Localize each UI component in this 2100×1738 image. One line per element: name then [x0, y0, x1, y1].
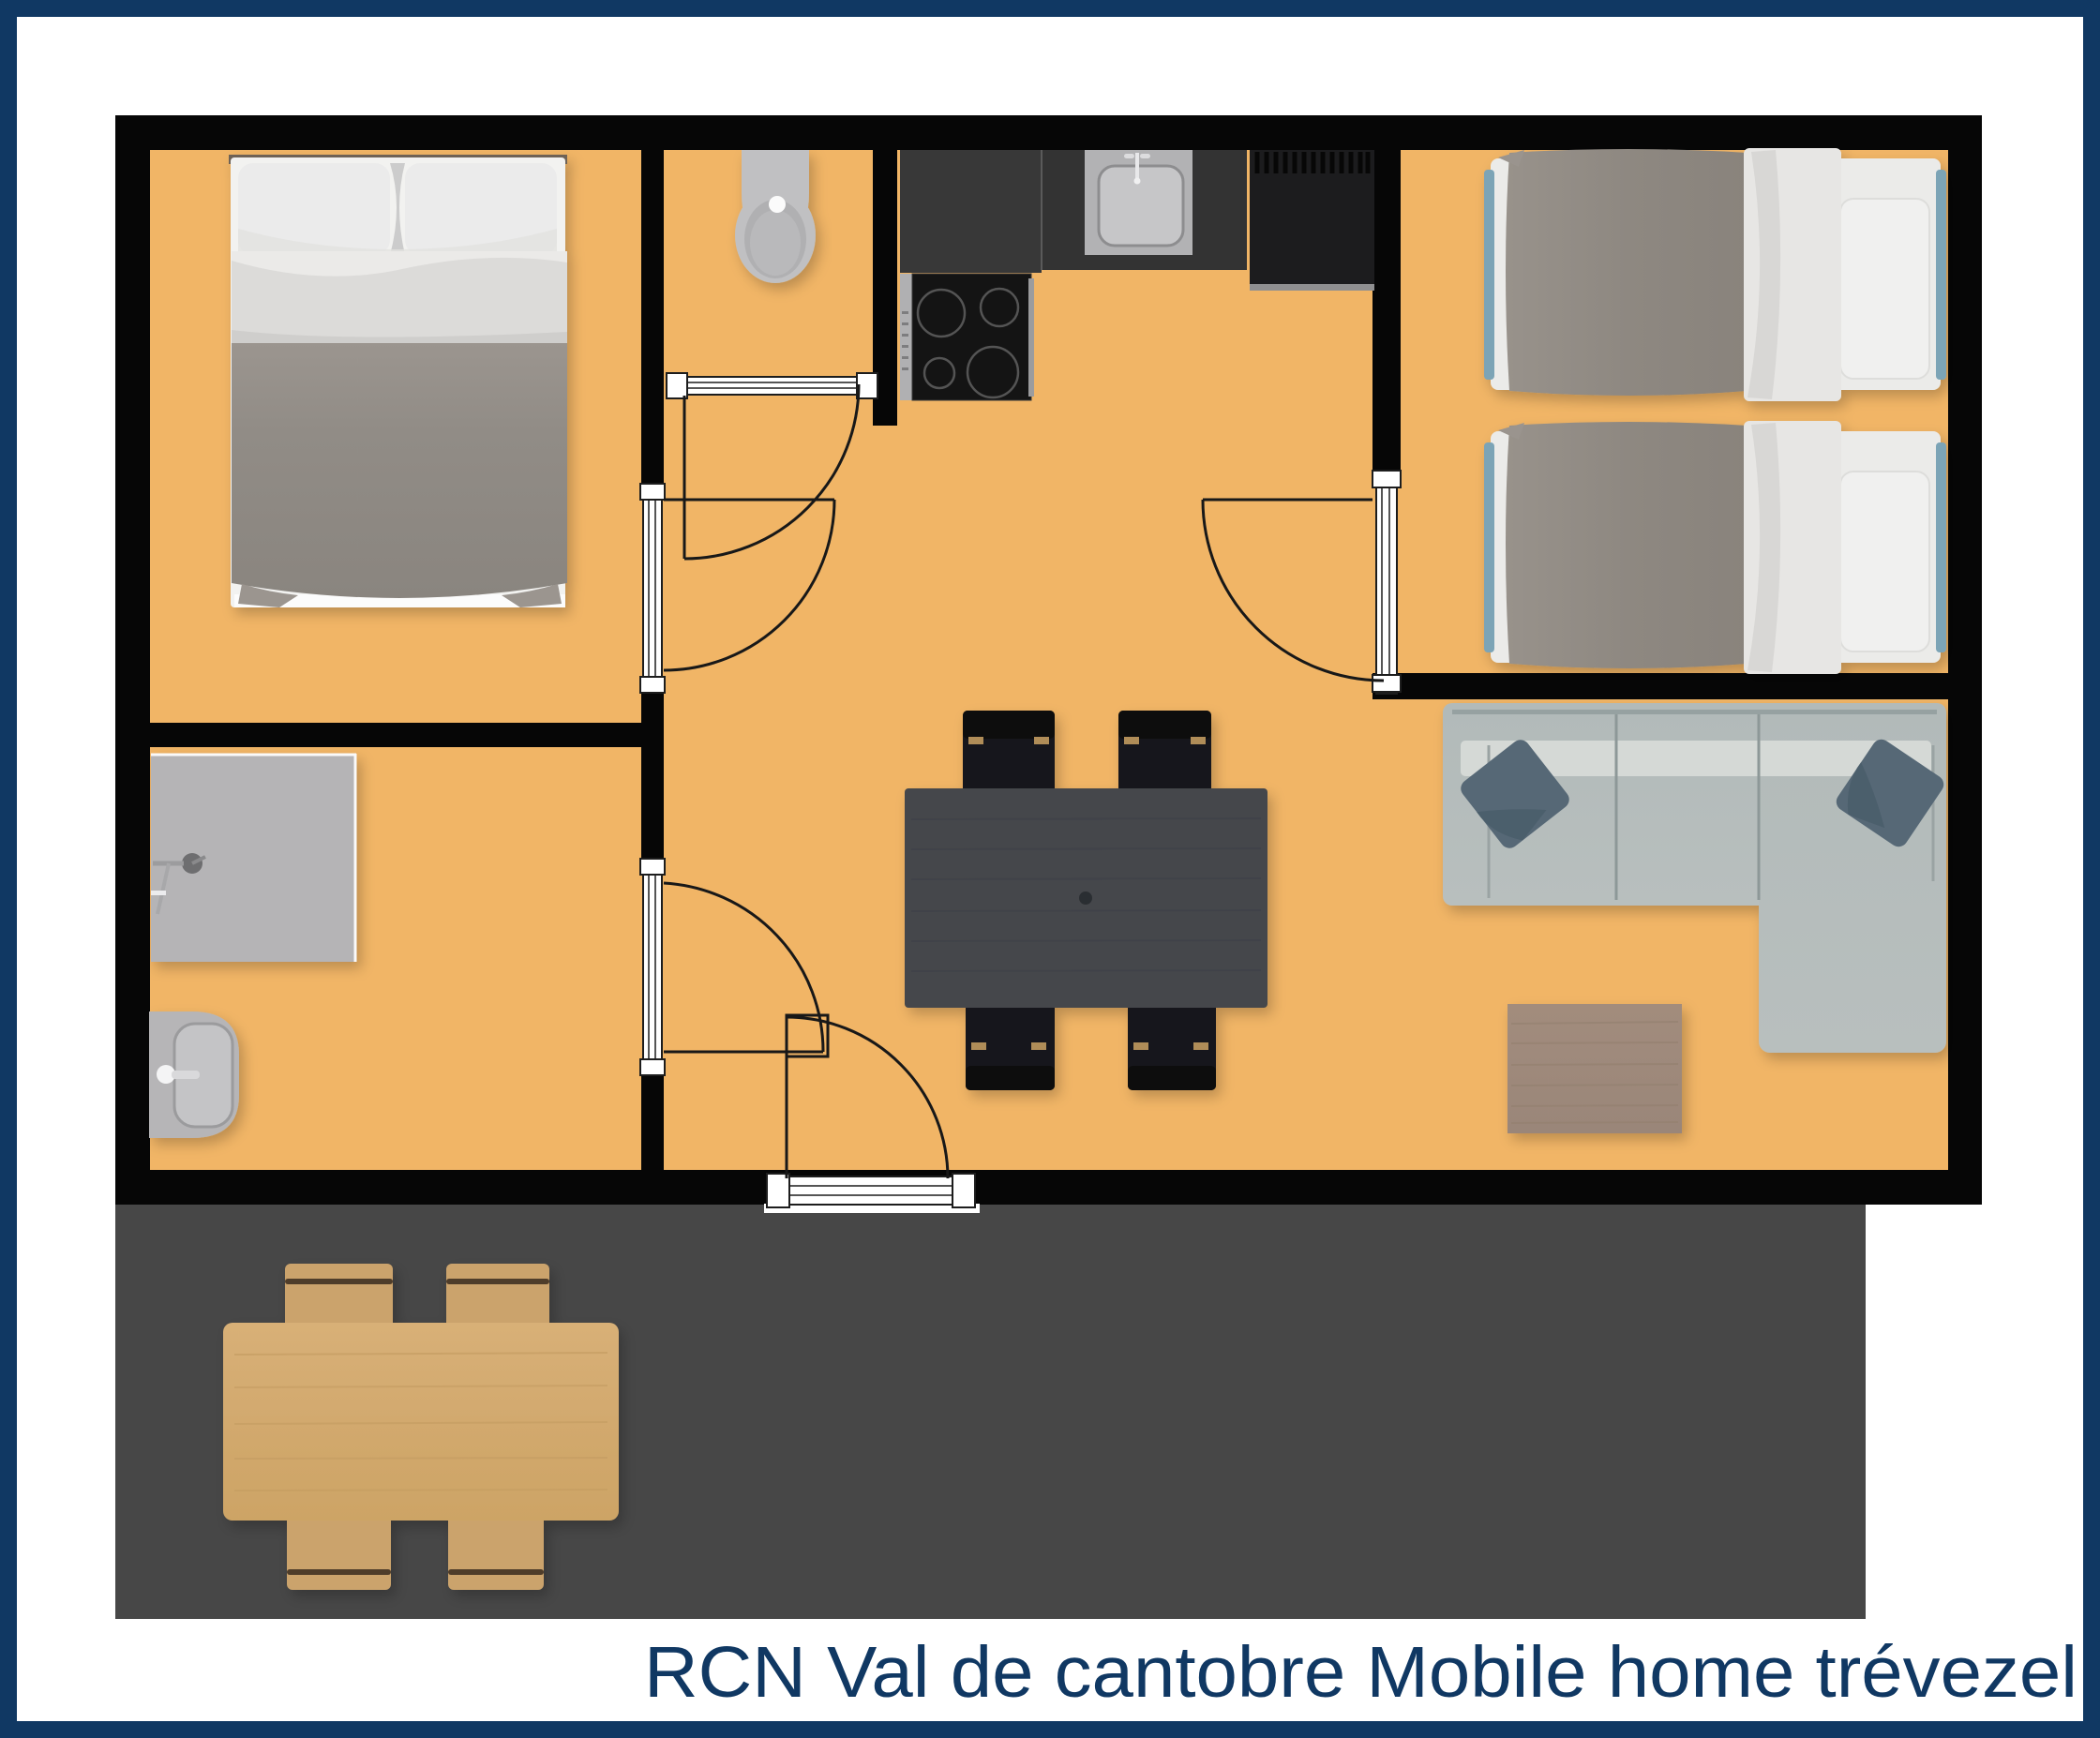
svg-text:RCN Val de cantobre Mobile hom: RCN Val de cantobre Mobile home trévezel	[644, 1632, 2077, 1713]
